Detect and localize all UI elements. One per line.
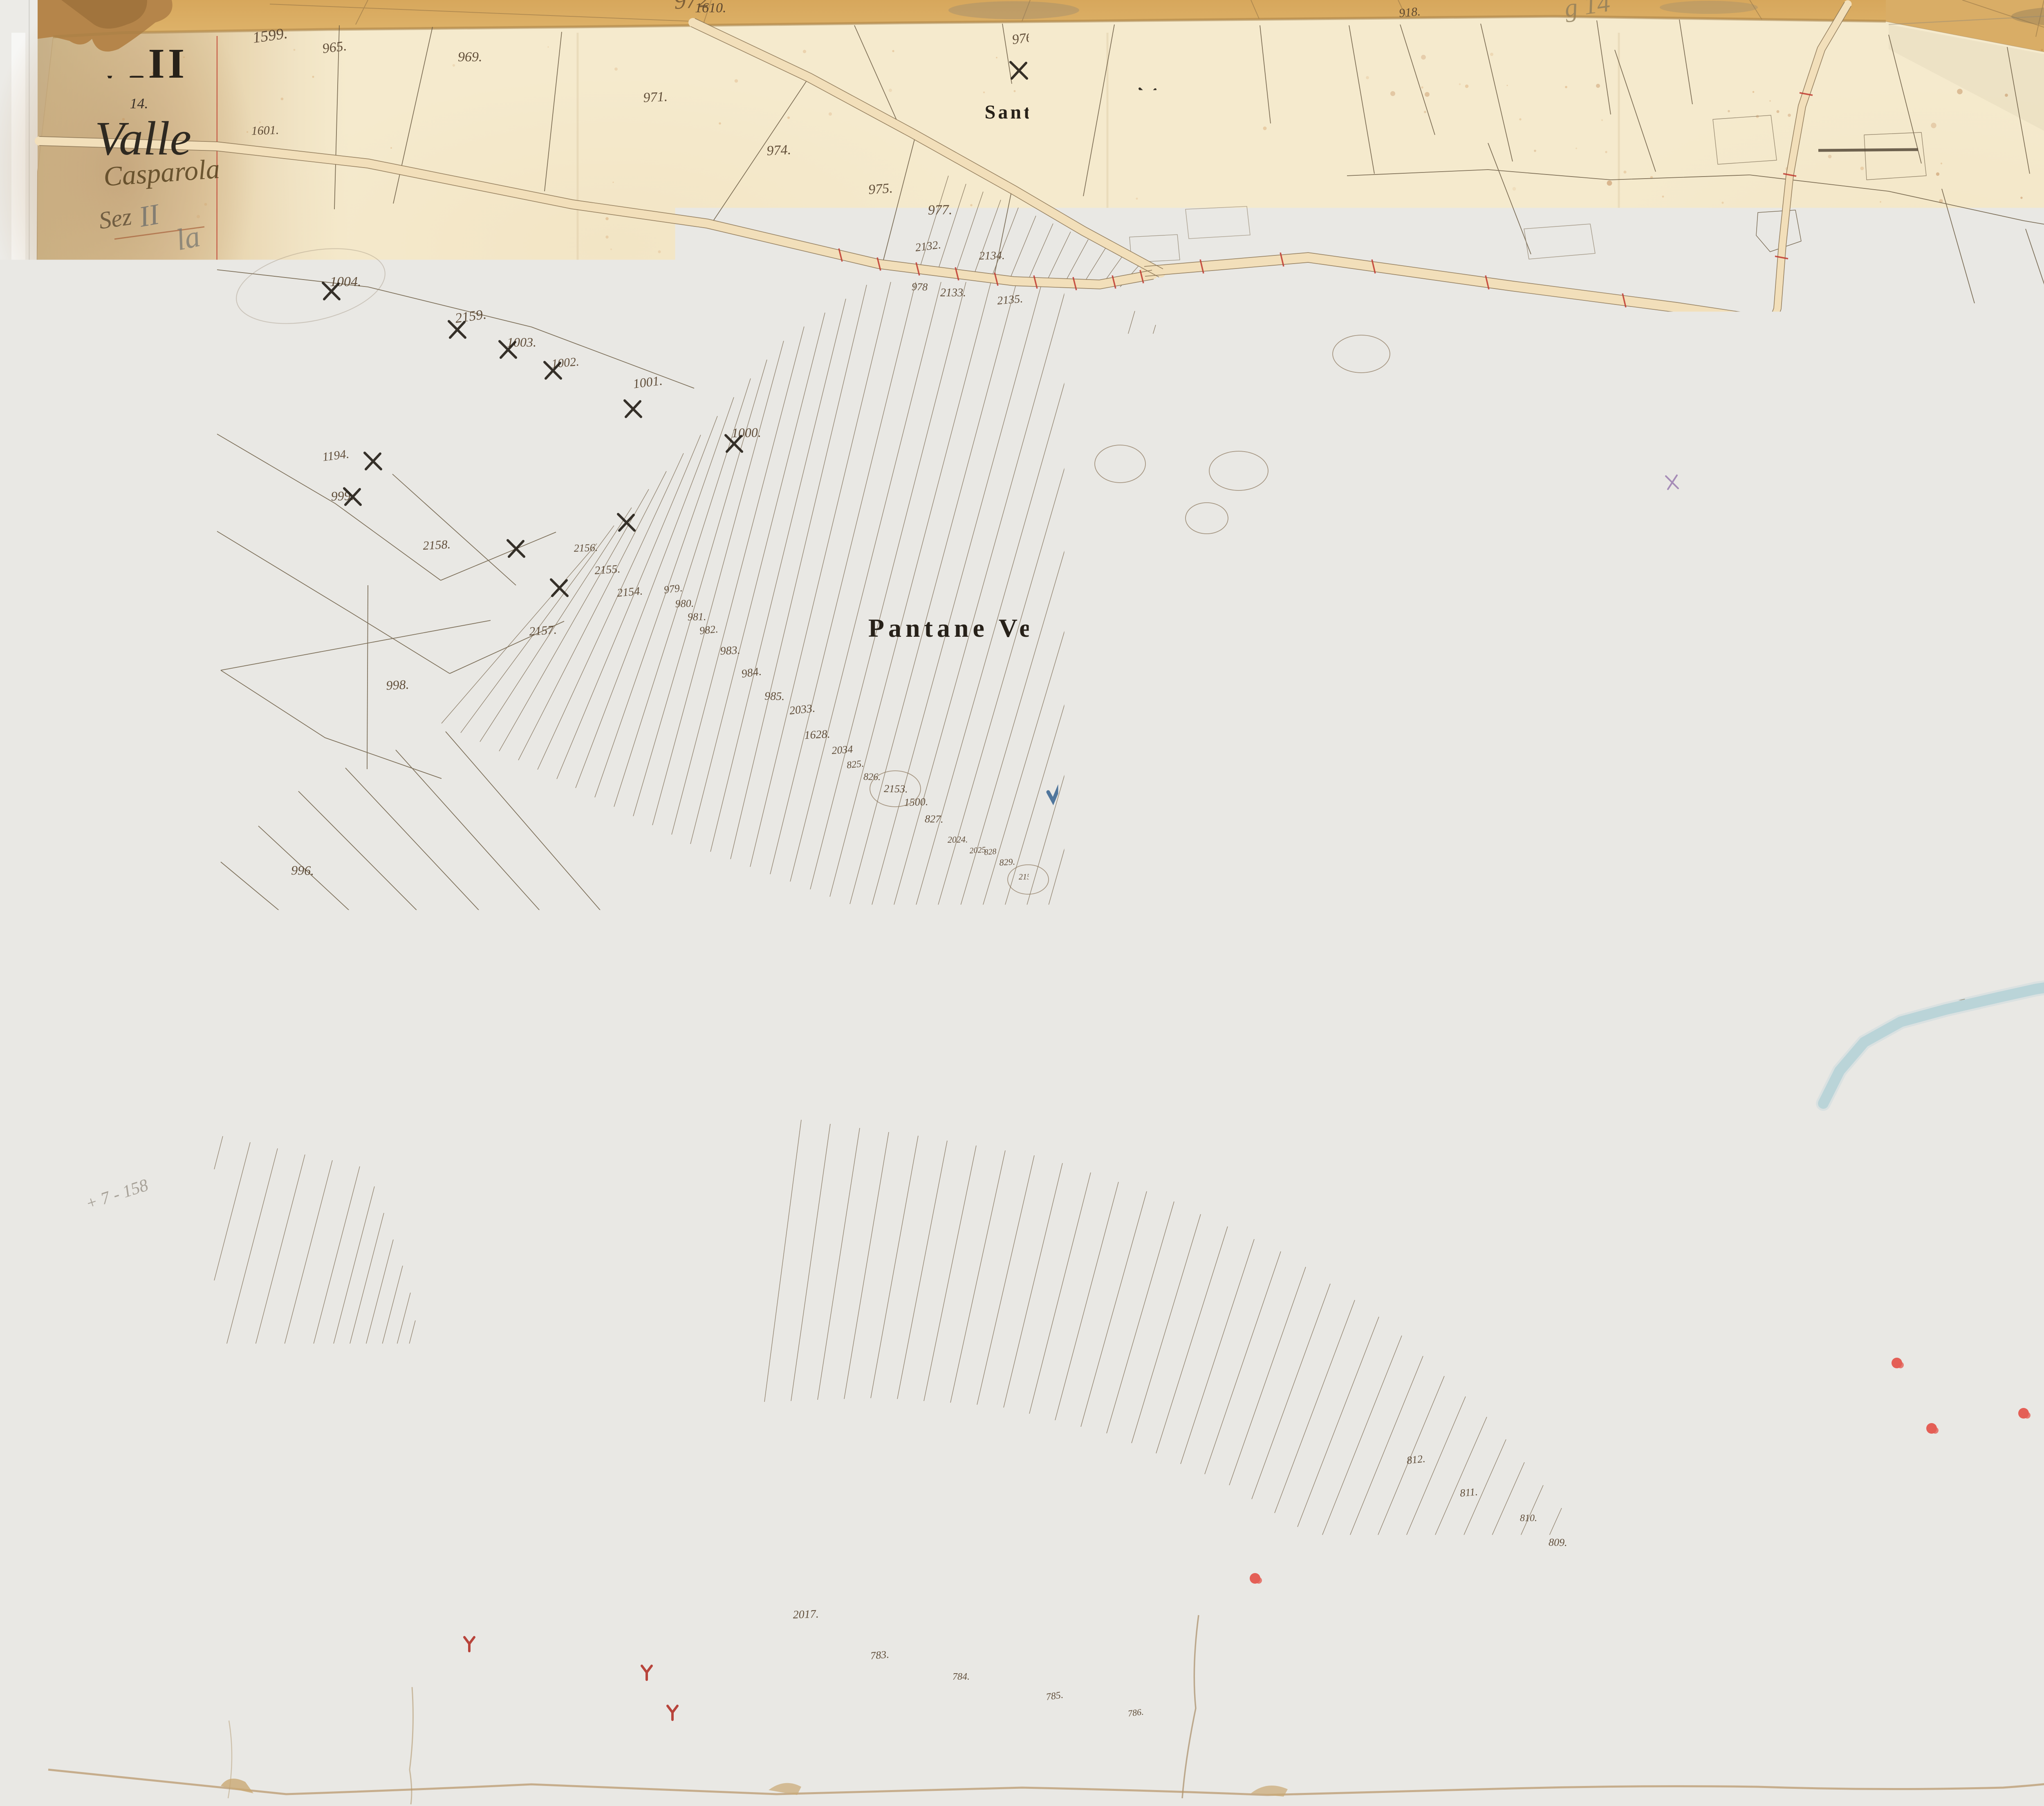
svg-text:864.: 864. [1483, 698, 1504, 712]
svg-text:1618: 1618 [1070, 256, 1089, 268]
svg-text:2158.: 2158. [423, 538, 451, 553]
svg-text:2149.: 2149. [1467, 933, 1494, 947]
svg-text:995.: 995. [367, 909, 391, 926]
svg-text:782.: 782. [723, 1610, 742, 1623]
svg-text:894.: 894. [1892, 145, 1916, 161]
svg-text:976.: 976. [1011, 29, 1037, 47]
svg-text:1046.: 1046. [403, 1251, 428, 1264]
svg-text:834 Sub.2°: 834 Sub.2° [1390, 794, 1423, 804]
svg-text:845.: 845. [1746, 1306, 1764, 1318]
svg-text:985.: 985. [764, 690, 785, 703]
svg-text:847.: 847. [1990, 1329, 2011, 1343]
svg-text:2152: 2152 [1019, 872, 1035, 882]
svg-text:3.: 3. [129, 24, 141, 40]
svg-text:802.: 802. [1999, 1625, 2018, 1637]
svg-text:795.: 795. [1815, 1683, 1832, 1694]
svg-text:981.: 981. [688, 611, 706, 623]
svg-text:1045.: 1045. [387, 1169, 415, 1183]
svg-text:990: 990 [564, 1087, 583, 1101]
svg-text:Sez: Sez [97, 203, 133, 234]
svg-text:2162.: 2162. [451, 1485, 475, 1498]
svg-text:808.: 808. [1672, 1401, 1691, 1412]
svg-text:2017.: 2017. [793, 1608, 819, 1621]
svg-text:987.: 987. [666, 1163, 685, 1175]
svg-text:Pantane Vecchie: Pantane Vecchie [868, 613, 1112, 642]
svg-text:979.: 979. [663, 582, 683, 596]
svg-text:2033.: 2033. [789, 702, 816, 717]
svg-text:2154.: 2154. [616, 585, 643, 600]
svg-text:830.: 830. [1041, 884, 1058, 896]
svg-text:1515.: 1515. [1529, 753, 1557, 767]
svg-text:828: 828 [984, 847, 997, 857]
svg-text:806.: 806. [1729, 1388, 1748, 1400]
svg-text:895.: 895. [2004, 27, 2028, 44]
svg-text:1192: 1192 [1806, 1014, 1829, 1029]
svg-text:2144.: 2144. [1713, 725, 1741, 739]
svg-text:2134.: 2134. [979, 249, 1005, 262]
svg-text:975.: 975. [868, 181, 893, 197]
svg-text:998.: 998. [385, 677, 409, 693]
svg-text:911.: 911. [1780, 217, 1800, 232]
svg-text:993.: 993. [437, 971, 455, 984]
svg-text:988.: 988. [637, 1137, 657, 1151]
svg-text:965.: 965. [321, 38, 347, 56]
svg-text:992.: 992. [466, 992, 486, 1006]
svg-text:1047.: 1047. [486, 1323, 511, 1336]
svg-text:876.: 876. [1981, 967, 2003, 982]
svg-text:784.: 784. [953, 1672, 970, 1682]
svg-text:1622.: 1622. [1116, 260, 1136, 272]
svg-text:792.: 792. [1397, 1719, 1416, 1731]
svg-text:1628.: 1628. [804, 728, 831, 742]
svg-text:1620.: 1620. [1096, 255, 1116, 266]
svg-text:Ara del Tufo: Ara del Tufo [1731, 470, 1941, 499]
svg-text:893.: 893. [1993, 214, 2018, 230]
svg-text:2136.: 2136. [1351, 345, 1385, 362]
svg-text:2153.: 2153. [884, 783, 908, 795]
svg-text:860.: 860. [1728, 1153, 1748, 1167]
svg-text:1000.: 1000. [731, 425, 761, 440]
svg-text:2034: 2034 [831, 743, 853, 756]
svg-text:846.: 846. [1856, 1347, 1876, 1360]
svg-text:825.: 825. [846, 759, 864, 771]
svg-text:810.: 810. [1520, 1513, 1537, 1524]
svg-text:1049.: 1049. [585, 1405, 609, 1417]
svg-text:2131.: 2131. [245, 1312, 266, 1322]
svg-text:2143.: 2143. [2003, 878, 2031, 892]
svg-text:2145.: 2145. [1594, 841, 1622, 857]
svg-text:870.: 870. [1741, 129, 1764, 145]
svg-text:865.: 865. [1455, 643, 1474, 656]
svg-text:918.: 918. [1399, 5, 1421, 20]
svg-text:838.: 838. [1323, 1136, 1345, 1151]
svg-text:859: 859 [1777, 1204, 1792, 1216]
svg-text:1062.: 1062. [286, 1376, 308, 1388]
svg-text:831.: 831. [1056, 899, 1074, 911]
svg-text:863. Sub.2°: 863. Sub.2° [1668, 461, 1718, 475]
svg-text:2141.: 2141. [1397, 817, 1422, 830]
svg-text:Santa Lucia: Santa Lucia [985, 101, 1113, 123]
svg-text:2156.: 2156. [574, 542, 598, 554]
svg-text:839.: 839. [1382, 1175, 1402, 1189]
svg-text:821.: 821. [937, 1299, 957, 1313]
svg-text:969.: 969. [458, 49, 482, 65]
svg-text:909.: 909. [1761, 79, 1786, 95]
svg-text:2155.: 2155. [594, 563, 621, 577]
svg-text:VIII: VIII [94, 40, 188, 87]
svg-text:871.: 871. [1484, 110, 1505, 123]
svg-text:2135.: 2135. [997, 293, 1023, 307]
svg-text:991.: 991. [525, 1059, 546, 1073]
svg-text:858.: 858. [1876, 1089, 1895, 1102]
svg-text:804.: 804. [1913, 1551, 1932, 1564]
svg-text:1627: 1627 [1189, 262, 1210, 274]
svg-text:994: 994 [409, 947, 427, 960]
svg-text:819.: 819. [1029, 1332, 1050, 1345]
svg-text:809.: 809. [1549, 1536, 1567, 1549]
svg-text:793.: 793. [1708, 1648, 1728, 1662]
svg-text:982.: 982. [699, 623, 719, 637]
svg-text:1500.: 1500. [904, 796, 928, 808]
svg-text:Pantane: Pantane [1094, 1433, 1208, 1460]
svg-text:853.: 853. [1831, 1137, 1852, 1151]
svg-text:974.: 974. [766, 142, 791, 159]
svg-text:2161.: 2161. [588, 1636, 614, 1650]
svg-text:2157.: 2157. [529, 623, 557, 638]
svg-text:2186.: 2186. [568, 1714, 587, 1725]
svg-text:910.: 910. [1887, 269, 1907, 282]
svg-text:835.: 835. [1026, 971, 1043, 982]
svg-text:978: 978 [912, 281, 928, 293]
svg-text:1059.: 1059. [388, 1622, 409, 1633]
svg-text:837.: 837. [1173, 1061, 1194, 1074]
svg-text:1508.: 1508. [1912, 1043, 1937, 1057]
svg-text:2044.: 2044. [597, 1726, 615, 1735]
svg-text:1054: 1054 [650, 1746, 666, 1755]
svg-text:917.: 917. [1497, 161, 1519, 175]
svg-text:824.: 824. [758, 1188, 777, 1202]
svg-text:2312: 2312 [220, 1110, 239, 1122]
svg-text:2146.: 2146. [1349, 953, 1375, 967]
svg-text:Strada: Strada [1647, 246, 1696, 269]
svg-text:1615.: 1615. [1144, 56, 1174, 72]
svg-text:1624.: 1624. [1141, 262, 1161, 272]
svg-text:842.: 842. [1488, 1294, 1507, 1306]
svg-text:1566.: 1566. [1343, 101, 1374, 118]
svg-text:820.: 820. [984, 1317, 1004, 1330]
svg-text:2142.: 2142. [1934, 746, 1963, 761]
svg-text:869.: 869. [1107, 456, 1130, 472]
svg-text:872.: 872. [1627, 349, 1650, 364]
svg-text:832.: 832. [1073, 913, 1090, 924]
svg-text:2150.: 2150. [1253, 1106, 1277, 1118]
svg-text:796.: 796. [1889, 1706, 1906, 1717]
svg-text:972: 972 [673, 0, 710, 14]
svg-text:996.: 996. [291, 863, 314, 878]
svg-text:Nocicchiola: Nocicchiola [1966, 1082, 2044, 1109]
svg-text:862.: 862. [1424, 942, 1445, 956]
svg-text:788.: 788. [1295, 1723, 1313, 1735]
svg-text:1662.: 1662. [305, 1117, 327, 1129]
svg-text:857.: 857. [1754, 1070, 1773, 1082]
svg-text:877.: 877. [2022, 1024, 2042, 1037]
svg-text:787.: 787. [1210, 1721, 1226, 1731]
svg-text:866.: 866. [1455, 439, 1477, 452]
svg-text:2024.: 2024. [948, 834, 968, 845]
svg-text:977.: 977. [928, 202, 952, 218]
svg-text:786.: 786. [1127, 1706, 1144, 1719]
svg-text:844.: 844. [1720, 1247, 1740, 1261]
svg-text:1193.: 1193. [1843, 1186, 1869, 1200]
svg-text:834: 834 [973, 940, 986, 951]
svg-text:2147.: 2147. [1387, 928, 1412, 942]
svg-text:854: 854 [1878, 866, 1929, 906]
svg-text:823.: 823. [813, 1240, 834, 1253]
svg-text:971.: 971. [643, 89, 668, 105]
svg-text:1626: 1626 [1165, 259, 1185, 270]
svg-text:811.: 811. [1459, 1486, 1478, 1499]
svg-text:833. Sub.2°: 833. Sub.2° [1333, 759, 1378, 770]
svg-text:841.: 841. [1453, 1253, 1472, 1265]
svg-text:829.: 829. [999, 856, 1015, 868]
svg-text:836.: 836. [1098, 1001, 1120, 1016]
svg-text:874.: 874. [1916, 298, 1939, 313]
svg-text:1521.: 1521. [1570, 310, 1600, 326]
svg-text:783.: 783. [870, 1648, 890, 1662]
svg-text:14.: 14. [130, 95, 148, 112]
svg-text:862.: 862. [1159, 835, 1181, 849]
svg-text:868: 868 [1198, 513, 1214, 525]
svg-text:980.: 980. [675, 597, 694, 610]
svg-text:2137.: 2137. [1357, 276, 1381, 289]
svg-text:2023.: 2023. [866, 1272, 889, 1285]
svg-text:1619.: 1619. [1051, 237, 1073, 248]
svg-text:997.: 997. [491, 1016, 513, 1031]
svg-text:983.: 983. [720, 644, 741, 658]
svg-text:921.: 921. [1376, 110, 1401, 126]
svg-text:2160.: 2160. [1269, 1399, 1296, 1414]
svg-text:1053.: 1053. [686, 1751, 707, 1763]
svg-text:1056.: 1056. [527, 1698, 548, 1710]
svg-text:815.: 815. [1228, 1387, 1248, 1400]
svg-text:822.: 822. [897, 1283, 916, 1296]
svg-text:2163.: 2163. [372, 1434, 392, 1445]
svg-text:827.: 827. [925, 813, 944, 825]
svg-text:818.: 818. [1085, 1348, 1105, 1361]
svg-text:2133.: 2133. [940, 286, 966, 299]
svg-text:794.: 794. [1754, 1580, 1773, 1592]
svg-text:989.: 989. [607, 1116, 627, 1129]
svg-text:817.: 817. [1139, 1361, 1160, 1375]
svg-text:843.: 843. [1494, 1361, 1511, 1372]
svg-text:1601.: 1601. [251, 123, 279, 138]
svg-text:813.: 813. [1364, 1433, 1383, 1446]
svg-text:816.: 816. [1188, 1376, 1209, 1390]
